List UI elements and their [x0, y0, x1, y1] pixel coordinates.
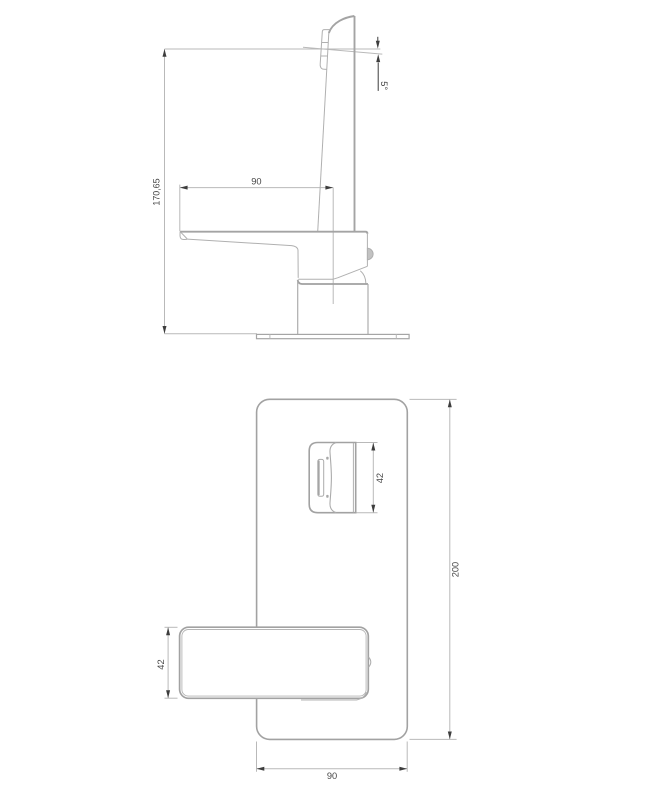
svg-text:42: 42 — [156, 659, 166, 669]
svg-text:5°: 5° — [379, 81, 389, 90]
svg-text:200: 200 — [451, 562, 461, 578]
svg-text:90: 90 — [327, 771, 337, 781]
svg-text:42: 42 — [375, 473, 385, 483]
svg-text:90: 90 — [251, 176, 261, 186]
svg-text:170,65: 170,65 — [152, 178, 162, 205]
